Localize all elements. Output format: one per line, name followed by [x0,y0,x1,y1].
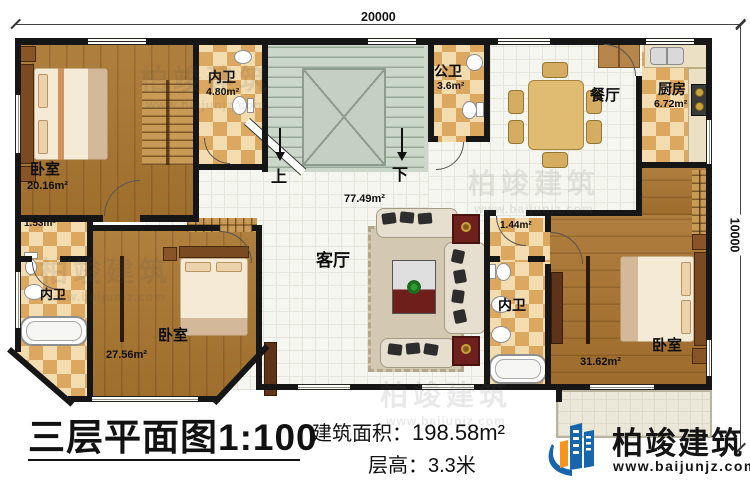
company-website: www.baijunjz.com [613,458,750,474]
stove-burner [695,102,704,111]
floor-plan-sheet: 卧室 20.16m² 内卫 4.80m² 公卫 3.6m² 餐厅 厨房 6.72… [0,0,750,486]
wall-bath-br-right2 [545,264,551,390]
toilet-bowl [232,96,247,115]
wall-kitchen-left2 [636,76,642,215]
bathtub [20,316,88,346]
stairs-up-label: 上 [271,170,287,186]
bedroom-bl-area: 27.56m² [106,350,147,361]
wall-closet-bl-bottom [15,256,32,262]
stove-burner [695,88,704,97]
bed-pillow [185,262,211,272]
dining-chair [586,120,602,144]
wall-stairs-left [262,38,268,172]
bathtub-basin [495,359,541,379]
kitchen-sink [650,47,684,65]
stairs-down-label: 下 [392,168,408,184]
window [368,38,416,45]
wall-bath-tl-bottom [193,164,268,170]
closet-bl-area: 1.53m² [24,219,56,229]
window [706,340,712,376]
window [88,38,146,45]
sofa-pillow [399,211,414,223]
window [92,396,198,402]
closet-rack [142,80,195,165]
bed-pillow [38,74,48,108]
wall-bedroom-br-top2 [526,210,642,216]
bathtub-basin [26,321,82,341]
toilet-bowl [462,101,477,119]
window [15,272,21,328]
bedroom-br-label: 卧室 [652,338,682,353]
bed-foot [180,318,248,336]
window [422,384,474,390]
plan-title-row: 三层平面图1:100 [28,407,318,461]
sofa-pillow [451,289,465,304]
bedroom-bl-label: 卧室 [158,328,188,343]
wall-kitchen-left [636,38,642,44]
sofa-pillow [453,309,467,324]
window [15,95,21,153]
floor-height-label: 层高： [368,455,428,477]
wall-publicbath-bottom2 [466,136,490,142]
window [706,120,712,164]
sofa-pillow [418,212,433,224]
stair-core [302,68,386,166]
dimension-top-value: 20000 [358,10,399,24]
wall-closet-bl-bottom2 [60,256,87,262]
public-bath-area: 3.6m² [437,81,464,92]
window [590,384,654,390]
bed-pillow [681,262,691,296]
building-area-row: 建筑面积：198.58m² [312,417,505,446]
sofa-pillow [387,343,402,356]
sink [234,50,252,64]
sink [466,54,483,71]
dining-chair [508,120,524,144]
sink [491,326,511,343]
living-area: 77.49m² [344,194,385,205]
toilet-tank [247,98,254,113]
bath-tl-label: 内卫 [208,70,236,84]
bathtub [489,354,547,384]
wall-terrace-stub [556,390,562,402]
company-name: 柏竣建筑 [612,418,744,463]
bed-pillow [38,120,48,154]
sofa-pillow [423,343,439,356]
bath-tl-area: 4.80m² [206,87,239,98]
wall-bath-br-right [545,216,551,232]
side-table-detail [461,344,471,354]
bedroom-tl-label: 卧室 [30,162,60,177]
toilet-bowl [496,263,511,281]
wall-kitchen-bottom [636,162,712,168]
stair-arrow-down-head [397,152,407,166]
company-logo-icon [540,414,606,483]
sofa-pillow [405,342,420,354]
kitchen-area: 6.72m² [654,99,687,110]
wall-closet-br-bottom2 [528,256,545,262]
bed-blanket [58,68,64,160]
potted-plant [407,280,421,294]
window [498,38,550,45]
dining-chair [542,152,568,168]
stair-arrow-up-head [275,152,285,166]
nightstand [163,247,177,261]
bed-pillow [681,300,691,334]
plan-scale: 1:100 [218,417,318,458]
bed-foot [620,256,638,342]
sofa-pillow [453,269,467,284]
kitchen-label: 厨房 [658,82,686,96]
bedroom-tl-area: 20.16m² [27,181,68,192]
closet-br-area: 1.44m² [500,221,532,231]
dining-table [528,80,584,150]
title-underline [28,459,300,461]
bed-foot [88,68,108,160]
wall-bedroom-bl-right [256,225,262,390]
wall-bath-bl-right [87,218,93,396]
wardrobe-line [586,256,590,344]
toilet-tank [489,264,496,279]
dimension-line-top [15,24,741,25]
floor-height-value: 3.3米 [428,455,476,477]
toilet-tank [476,102,484,117]
dimension-right-value: 10000 [727,215,741,256]
bath-br-label: 内卫 [498,298,526,312]
public-bath-label: 公卫 [434,64,462,78]
living-label: 客厅 [316,252,350,269]
dining-chair [542,62,568,78]
dining-chair [508,90,524,114]
bedroom-br-area: 31.62m² [580,357,621,368]
building-area-value: 198.58m² [412,420,505,445]
wall-bedroom-bl-top [87,225,220,231]
stair-arrow-down-stem [401,128,403,154]
bath-bl-label: 内卫 [40,288,66,301]
wall-bedroom-tl-bottom2 [140,215,193,222]
wall-publicbath-left [428,38,434,142]
wall-bath-br-left [484,216,490,390]
wall-publicbath-right [484,38,490,142]
nightstand [20,46,36,62]
bed-headboard [20,64,34,164]
wall-outer-right [706,38,712,390]
side-table-detail [461,222,471,232]
window [298,384,350,390]
company-logo: 柏竣建筑 www.baijunjz.com [540,412,745,482]
plan-title: 三层平面图 [28,417,218,458]
wall-bedroom-tl-right [193,38,199,222]
bed-pillow [216,262,242,272]
building-area-label: 建筑面积： [312,423,412,445]
wall-closet-br-bottom [490,256,500,262]
stair-arrow-up-stem [279,128,281,154]
dining-label: 餐厅 [590,88,620,103]
wardrobe-line [120,256,124,342]
floor-height-row: 层高：3.3米 [368,449,476,478]
sofa-pillow [381,212,396,225]
tv-cabinet [551,272,563,344]
window [646,38,694,45]
